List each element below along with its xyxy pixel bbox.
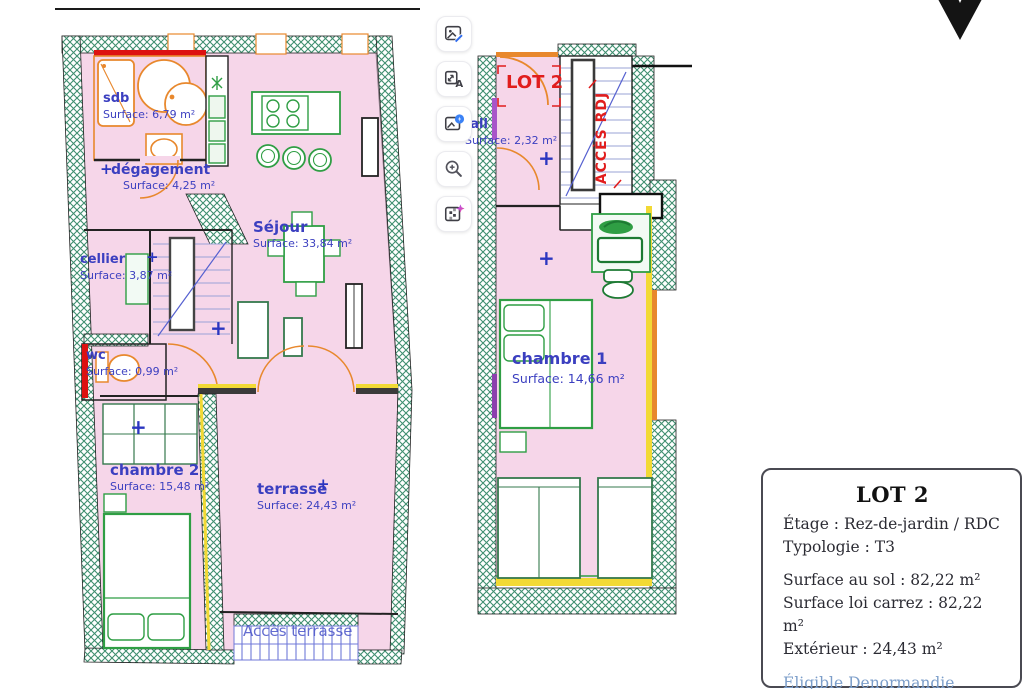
image-edit-icon bbox=[443, 23, 465, 45]
image-pixelate-icon bbox=[443, 203, 465, 225]
letter-a-glyph: A bbox=[455, 79, 463, 90]
image-edit-button[interactable] bbox=[436, 16, 472, 52]
zoom-in-icon bbox=[443, 158, 465, 180]
lot-card-title: LOT 2 bbox=[783, 482, 1002, 507]
image-text-icon: A bbox=[443, 68, 465, 90]
floor-plan-right bbox=[478, 44, 692, 614]
floor-plan-viewer: sdb Surface: 6,79 m² dégagement Surface:… bbox=[0, 0, 1024, 689]
image-pixelate-button[interactable] bbox=[436, 196, 472, 232]
acces-rdj-label: ACCÈS RDJ bbox=[594, 73, 610, 203]
lot-2-plan-label: LOT 2 bbox=[506, 72, 563, 93]
image-text-button[interactable]: A bbox=[436, 61, 472, 97]
zoom-in-button[interactable] bbox=[436, 151, 472, 187]
lot-exterieur: Extérieur : 24,43 m² bbox=[783, 638, 1002, 661]
lot-etage: Étage : Rez-de-jardin / RDC bbox=[783, 513, 1002, 536]
floor-plan-left bbox=[55, 9, 420, 664]
image-tools-toolbar: A bbox=[436, 16, 472, 232]
image-enhance-button[interactable] bbox=[436, 106, 472, 142]
image-enhance-icon bbox=[443, 113, 465, 135]
lot-surface-carrez: Surface loi carrez : 82,22 m² bbox=[783, 592, 1002, 639]
eligible-denormandie-link[interactable]: Éligible Denormandie bbox=[783, 672, 1002, 689]
lot-surface-sol: Surface au sol : 82,22 m² bbox=[783, 569, 1002, 592]
lot-typologie: Typologie : T3 bbox=[783, 536, 1002, 559]
brand-logo-icon bbox=[924, 0, 996, 46]
lot-info-card: LOT 2 Étage : Rez-de-jardin / RDC Typolo… bbox=[761, 468, 1022, 688]
acces-terrasse-label: Accès terrasse bbox=[243, 622, 353, 640]
